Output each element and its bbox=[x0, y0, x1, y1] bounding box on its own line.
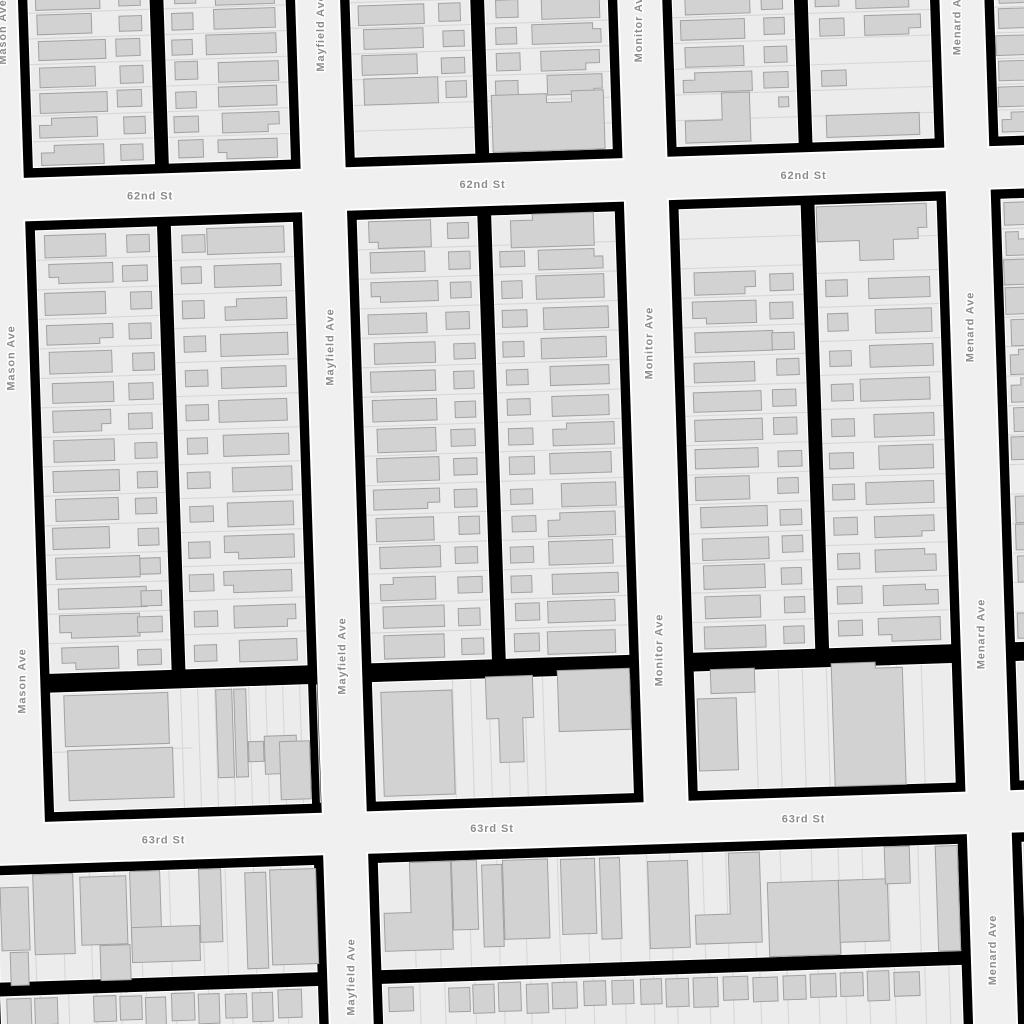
svg-text:Mason Ave: Mason Ave bbox=[6, 325, 18, 390]
svg-text:63rd St: 63rd St bbox=[782, 814, 826, 826]
svg-text:Mason Ave: Mason Ave bbox=[0, 0, 9, 65]
svg-text:Monitor Ave: Monitor Ave bbox=[654, 614, 666, 687]
svg-text:63rd St: 63rd St bbox=[470, 823, 514, 835]
svg-text:Mayfield Ave: Mayfield Ave bbox=[315, 0, 327, 72]
svg-text:62nd St: 62nd St bbox=[459, 179, 505, 191]
svg-text:62nd St: 62nd St bbox=[780, 170, 826, 182]
svg-text:63rd St: 63rd St bbox=[142, 835, 186, 847]
svg-text:Monitor Ave: Monitor Ave bbox=[633, 0, 645, 62]
svg-text:62nd St: 62nd St bbox=[127, 191, 173, 203]
svg-text:Mayfield Ave: Mayfield Ave bbox=[325, 308, 337, 385]
svg-text:Monitor Ave: Monitor Ave bbox=[644, 307, 656, 380]
svg-text:Menard Ave: Menard Ave bbox=[987, 915, 999, 986]
svg-text:Menard Ave: Menard Ave bbox=[976, 599, 988, 670]
svg-text:Menard Ave: Menard Ave bbox=[952, 0, 964, 55]
svg-text:Mayfield Ave: Mayfield Ave bbox=[346, 938, 358, 1015]
svg-text:Mason Ave: Mason Ave bbox=[17, 648, 29, 713]
svg-text:Menard Ave: Menard Ave bbox=[965, 292, 977, 363]
svg-text:Mayfield Ave: Mayfield Ave bbox=[337, 617, 349, 694]
